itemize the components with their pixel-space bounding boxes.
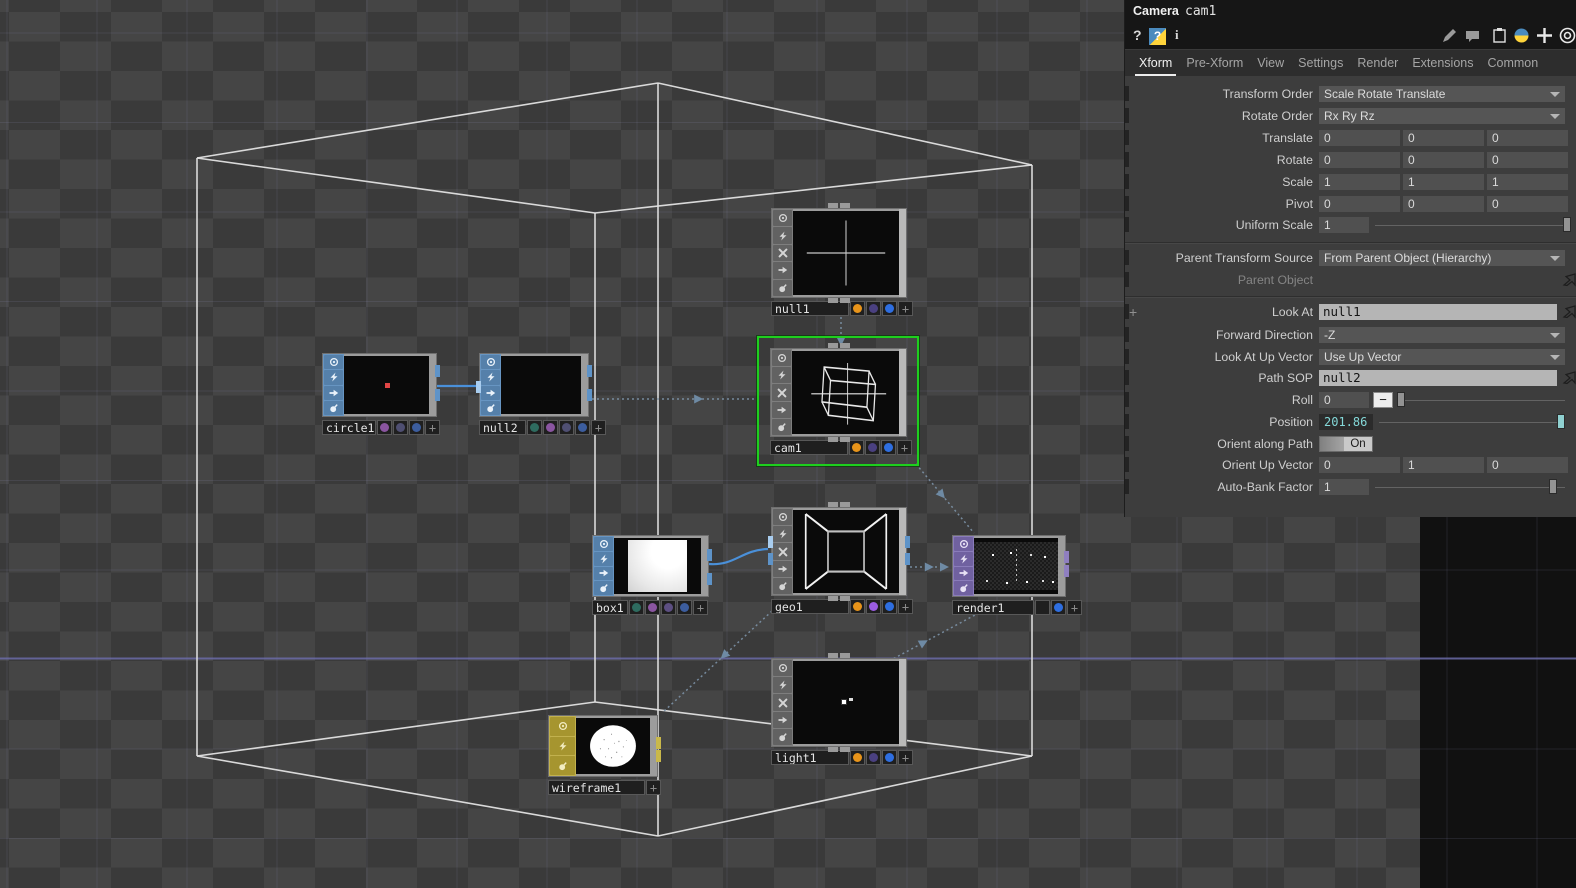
- node-label-row-box1: box1+: [592, 600, 708, 615]
- node-name-geo1[interactable]: geo1: [771, 599, 849, 614]
- cross-flag-icon[interactable]: [773, 245, 792, 261]
- node-color-badge[interactable]: [575, 420, 590, 435]
- help-icon[interactable]: ?: [1133, 27, 1142, 43]
- param-field-rotate-0[interactable]: 0: [1319, 152, 1400, 168]
- chevron-down-icon: [1550, 333, 1560, 338]
- node-color-badge[interactable]: [882, 599, 897, 614]
- info-icon[interactable]: i: [1175, 27, 1179, 43]
- clipboard-icon[interactable]: [1491, 27, 1508, 44]
- bypass-flag-icon[interactable]: [773, 526, 792, 542]
- param-label-forward-direction: Forward Direction: [1125, 327, 1313, 343]
- node-color-badge[interactable]: [866, 750, 881, 765]
- node-connector-stub[interactable]: [587, 389, 592, 401]
- node-label-row-render1: render1+: [952, 600, 1082, 615]
- tab-view[interactable]: View: [1250, 51, 1291, 76]
- param-label-auto-bank-factor: Auto-Bank Factor: [1125, 479, 1313, 495]
- slider-track[interactable]: [1379, 422, 1557, 423]
- node-connector-stub[interactable]: [707, 573, 712, 585]
- node-add-badge-button[interactable]: +: [591, 420, 606, 435]
- node-connector-tab[interactable]: [840, 596, 850, 601]
- node-connector-tab[interactable]: [828, 298, 838, 303]
- node-color-badge[interactable]: [409, 420, 424, 435]
- slider-track[interactable]: [1375, 225, 1565, 226]
- node-color-badge[interactable]: [527, 420, 542, 435]
- lock-flag-icon[interactable]: [954, 581, 973, 595]
- node-name-null2[interactable]: null2: [479, 420, 526, 435]
- lock-flag-icon[interactable]: [773, 280, 792, 296]
- param-field-uniform-scale[interactable]: 1: [1319, 217, 1369, 233]
- node-color-badge[interactable]: [677, 600, 692, 615]
- node-connector-tab[interactable]: [828, 203, 838, 208]
- node-connector-tab[interactable]: [840, 747, 850, 752]
- node-picker-icon[interactable]: [1559, 370, 1576, 386]
- node-color-badge[interactable]: [377, 420, 392, 435]
- operator-type-label: Camera: [1133, 4, 1179, 18]
- node-connector-tab[interactable]: [840, 502, 850, 507]
- param-field-pivot-1[interactable]: 0: [1403, 196, 1484, 212]
- node-connector-tab[interactable]: [840, 653, 850, 658]
- node-light1[interactable]: [771, 658, 907, 747]
- node-viewer-box1[interactable]: [614, 538, 701, 594]
- tab-extensions[interactable]: Extensions: [1405, 51, 1480, 76]
- node-add-badge-button[interactable]: +: [898, 599, 913, 614]
- node-picker-icon[interactable]: [1559, 272, 1576, 288]
- node-connector-stub[interactable]: [768, 536, 773, 548]
- node-label-row-wireframe1: wireframe1+: [548, 780, 661, 795]
- node-color-badge[interactable]: [1051, 600, 1066, 615]
- param-label-roll: Roll: [1125, 392, 1313, 408]
- node-render1[interactable]: [952, 535, 1066, 597]
- arrow-flag-icon[interactable]: [324, 386, 343, 400]
- lock-flag-icon[interactable]: [594, 581, 613, 595]
- node-color-badge[interactable]: [645, 600, 660, 615]
- node-label-row-light1: light1+: [771, 750, 913, 765]
- selection-outline-cam1: [757, 336, 919, 466]
- comment-icon[interactable]: [1464, 27, 1481, 44]
- param-label-orient-up-vector: Orient Up Vector: [1125, 457, 1313, 473]
- param-field-auto-bank-factor[interactable]: 1: [1319, 479, 1369, 495]
- section-divider: [1125, 242, 1576, 244]
- bypass-flag-icon[interactable]: [550, 737, 575, 756]
- node-null1[interactable]: [771, 208, 907, 298]
- node-box1[interactable]: [592, 535, 709, 597]
- parameter-panel: Camera cam1 ??i XformPre-XformViewSettin…: [1124, 0, 1576, 517]
- param-dropdown-transform-order[interactable]: Scale Rotate Translate: [1319, 86, 1565, 102]
- node-connector-tab[interactable]: [840, 298, 850, 303]
- node-color-badge[interactable]: [543, 420, 558, 435]
- node-color-badge[interactable]: [661, 600, 676, 615]
- node-wireframe1[interactable]: [548, 715, 658, 777]
- node-color-badge[interactable]: [1035, 600, 1050, 615]
- node-connector-stub[interactable]: [476, 381, 481, 393]
- node-color-badge[interactable]: [866, 301, 881, 316]
- node-connector-stub[interactable]: [905, 553, 910, 565]
- bypass-flag-icon[interactable]: [324, 370, 343, 384]
- node-add-badge-button[interactable]: +: [425, 420, 440, 435]
- node-connector-stub[interactable]: [707, 549, 712, 561]
- viewer-flag-icon[interactable]: [773, 509, 792, 525]
- param-field-translate-1[interactable]: 0: [1403, 130, 1484, 146]
- node-color-badge[interactable]: [866, 599, 881, 614]
- param-label-position: Position: [1125, 414, 1313, 430]
- tab-xform[interactable]: Xform: [1132, 51, 1179, 76]
- node-color-badge[interactable]: [629, 600, 644, 615]
- arrow-flag-icon[interactable]: [773, 561, 792, 577]
- node-viewer-circle1[interactable]: [344, 356, 429, 414]
- viewer-flag-icon[interactable]: [773, 210, 792, 226]
- chevron-down-icon: [1550, 256, 1560, 261]
- node-name-null1[interactable]: null1: [771, 301, 849, 316]
- arrow-flag-icon[interactable]: [594, 567, 613, 581]
- param-label-look-at: Look At: [1125, 304, 1313, 320]
- viewer-flag-icon[interactable]: [550, 717, 575, 736]
- node-label-row-null2: null2+: [479, 420, 606, 435]
- node-null2[interactable]: [479, 353, 589, 417]
- python-help-icon[interactable]: ?: [1149, 28, 1166, 45]
- arrow-flag-icon[interactable]: [773, 262, 792, 278]
- param-label-parent-object: Parent Object: [1125, 272, 1313, 288]
- slider-collapse-button[interactable]: −: [1373, 392, 1393, 408]
- node-add-badge-button[interactable]: +: [646, 780, 661, 795]
- node-label-row-circle1: circle1+: [322, 420, 440, 435]
- node-connector-stub[interactable]: [905, 536, 910, 548]
- plus-icon[interactable]: [1536, 27, 1553, 44]
- node-color-badge[interactable]: [850, 599, 865, 614]
- param-dropdown-look-at-up-vector[interactable]: Use Up Vector: [1319, 349, 1565, 365]
- param-label-orient-along-path: Orient along Path: [1125, 436, 1313, 452]
- lock-flag-icon[interactable]: [773, 729, 792, 745]
- slider-handle[interactable]: [1563, 217, 1571, 232]
- chevron-down-icon: [1550, 92, 1560, 97]
- node-viewer-null2[interactable]: [501, 356, 581, 414]
- node-viewer-render1[interactable]: [974, 538, 1058, 594]
- node-add-badge-button[interactable]: +: [898, 301, 913, 316]
- node-name-circle1[interactable]: circle1: [322, 420, 376, 435]
- slider-track[interactable]: [1397, 400, 1565, 401]
- node-connector-stub[interactable]: [768, 553, 773, 565]
- node-viewer-wireframe1[interactable]: [576, 718, 650, 774]
- node-color-badge[interactable]: [882, 301, 897, 316]
- param-label-look-at-up-vector: Look At Up Vector: [1125, 349, 1313, 365]
- node-color-badge[interactable]: [850, 750, 865, 765]
- chevron-down-icon: [1550, 355, 1560, 360]
- param-field-orient-up-vector-1[interactable]: 1: [1403, 457, 1484, 473]
- bypass-flag-icon[interactable]: [773, 677, 792, 693]
- bypass-flag-icon[interactable]: [773, 227, 792, 243]
- node-color-badge[interactable]: [393, 420, 408, 435]
- lock-flag-icon[interactable]: [324, 401, 343, 415]
- node-geo1[interactable]: [771, 507, 907, 596]
- param-field-translate-0[interactable]: 0: [1319, 130, 1400, 146]
- param-dropdown-rotate-order[interactable]: Rx Ry Rz: [1319, 108, 1565, 124]
- arrow-flag-icon[interactable]: [773, 712, 792, 728]
- bypass-flag-icon[interactable]: [481, 370, 500, 384]
- arrow-flag-icon[interactable]: [954, 567, 973, 581]
- slider-handle-cyan[interactable]: [1557, 414, 1565, 429]
- param-label-scale: Scale: [1125, 174, 1313, 190]
- node-connector-tab[interactable]: [828, 502, 838, 507]
- param-field-scale-2[interactable]: 1: [1487, 174, 1568, 190]
- node-connector-stub[interactable]: [1064, 565, 1069, 577]
- param-label-rotate-order: Rotate Order: [1125, 108, 1313, 124]
- parameter-tabs: XformPre-XformViewSettingsRenderExtensio…: [1125, 49, 1576, 76]
- touchdesigner-window: circle1+null2+box1+null1+cam1+geo1+light…: [0, 0, 1576, 888]
- param-field-rotate-1[interactable]: 0: [1403, 152, 1484, 168]
- param-field-pivot-0[interactable]: 0: [1319, 196, 1400, 212]
- tab-common[interactable]: Common: [1481, 51, 1546, 76]
- node-add-badge-button[interactable]: +: [693, 600, 708, 615]
- node-connector-tab[interactable]: [840, 203, 850, 208]
- bypass-flag-icon[interactable]: [594, 552, 613, 566]
- param-field-position[interactable]: 201.86: [1319, 414, 1373, 430]
- target-icon[interactable]: [1559, 27, 1576, 44]
- panel-header: Camera cam1: [1125, 0, 1576, 24]
- param-field-rotate-2[interactable]: 0: [1487, 152, 1568, 168]
- node-viewer-geo1[interactable]: [793, 510, 899, 593]
- node-connector-stub[interactable]: [435, 365, 440, 377]
- viewer-flag-icon[interactable]: [324, 355, 343, 369]
- param-dropdown-parent-transform-source[interactable]: From Parent Object (Hierarchy): [1319, 250, 1565, 266]
- node-connector-tab[interactable]: [828, 653, 838, 658]
- viewer-flag-icon[interactable]: [594, 537, 613, 551]
- node-connector-stub[interactable]: [587, 365, 592, 377]
- slider-handle[interactable]: [1397, 392, 1405, 407]
- node-connector-stub[interactable]: [656, 737, 661, 749]
- param-dropdown-forward-direction[interactable]: -Z: [1319, 327, 1565, 343]
- python-icon[interactable]: [1513, 27, 1530, 44]
- node-color-badge[interactable]: [559, 420, 574, 435]
- node-color-badge[interactable]: [850, 301, 865, 316]
- param-label-rotate: Rotate: [1125, 152, 1313, 168]
- lock-flag-icon[interactable]: [773, 578, 792, 594]
- node-connector-stub[interactable]: [435, 389, 440, 401]
- lock-flag-icon[interactable]: [550, 756, 575, 775]
- lock-flag-icon[interactable]: [481, 401, 500, 415]
- node-add-badge-button[interactable]: +: [898, 750, 913, 765]
- param-ref-field-look-at[interactable]: null1: [1319, 304, 1557, 320]
- node-picker-icon[interactable]: [1559, 304, 1576, 320]
- node-name-render1[interactable]: render1: [952, 600, 1034, 615]
- param-field-orient-up-vector-2[interactable]: 0: [1487, 457, 1568, 473]
- tab-render[interactable]: Render: [1350, 51, 1405, 76]
- slider-handle[interactable]: [1549, 479, 1557, 494]
- param-label-translate: Translate: [1125, 130, 1313, 146]
- param-label-transform-order: Transform Order: [1125, 86, 1313, 102]
- node-color-badge[interactable]: [882, 750, 897, 765]
- viewer-flag-icon[interactable]: [481, 355, 500, 369]
- param-toggle-orient-along-path[interactable]: On: [1319, 436, 1373, 452]
- param-field-scale-1[interactable]: 1: [1403, 174, 1484, 190]
- chevron-down-icon: [1550, 114, 1560, 119]
- node-add-badge-button[interactable]: +: [1067, 600, 1082, 615]
- node-viewer-null1[interactable]: [793, 211, 899, 295]
- param-field-orient-up-vector-0[interactable]: 0: [1319, 457, 1400, 473]
- param-field-roll[interactable]: 0: [1319, 392, 1369, 408]
- node-connector-stub[interactable]: [1064, 551, 1069, 563]
- node-label-row-null1: null1+: [771, 301, 913, 316]
- param-label-parent-transform-source: Parent Transform Source: [1125, 250, 1313, 266]
- panel-icon-row: ??i: [1125, 24, 1576, 49]
- param-label-uniform-scale: Uniform Scale: [1125, 217, 1313, 233]
- node-circle1[interactable]: [322, 353, 437, 417]
- arrow-flag-icon[interactable]: [481, 386, 500, 400]
- node-connector-tab[interactable]: [828, 747, 838, 752]
- bypass-flag-icon[interactable]: [954, 552, 973, 566]
- param-label-pivot: Pivot: [1125, 196, 1313, 212]
- viewer-flag-icon[interactable]: [773, 660, 792, 676]
- operator-name-field[interactable]: cam1: [1185, 4, 1216, 19]
- node-name-box1[interactable]: box1: [592, 600, 628, 615]
- param-label-path-sop: Path SOP: [1125, 370, 1313, 386]
- node-connector-stub[interactable]: [656, 750, 661, 762]
- slider-track[interactable]: [1375, 487, 1565, 488]
- tab-settings[interactable]: Settings: [1291, 51, 1350, 76]
- param-field-pivot-2[interactable]: 0: [1487, 196, 1568, 212]
- node-label-row-geo1: geo1+: [771, 599, 913, 614]
- param-ref-field-path-sop[interactable]: null2: [1319, 370, 1557, 386]
- node-connector-tab[interactable]: [828, 596, 838, 601]
- pencil-icon[interactable]: [1441, 27, 1458, 44]
- section-divider: [1125, 296, 1576, 298]
- node-viewer-light1[interactable]: [793, 661, 899, 744]
- cross-flag-icon[interactable]: [773, 543, 792, 559]
- viewer-flag-icon[interactable]: [954, 537, 973, 551]
- param-field-scale-0[interactable]: 1: [1319, 174, 1400, 190]
- node-name-wireframe1[interactable]: wireframe1: [548, 780, 645, 795]
- param-field-translate-2[interactable]: 0: [1487, 130, 1568, 146]
- cross-flag-icon[interactable]: [773, 694, 792, 710]
- node-name-light1[interactable]: light1: [771, 750, 849, 765]
- expand-plus-icon[interactable]: +: [1129, 304, 1137, 320]
- tab-pre-xform[interactable]: Pre-Xform: [1179, 51, 1250, 76]
